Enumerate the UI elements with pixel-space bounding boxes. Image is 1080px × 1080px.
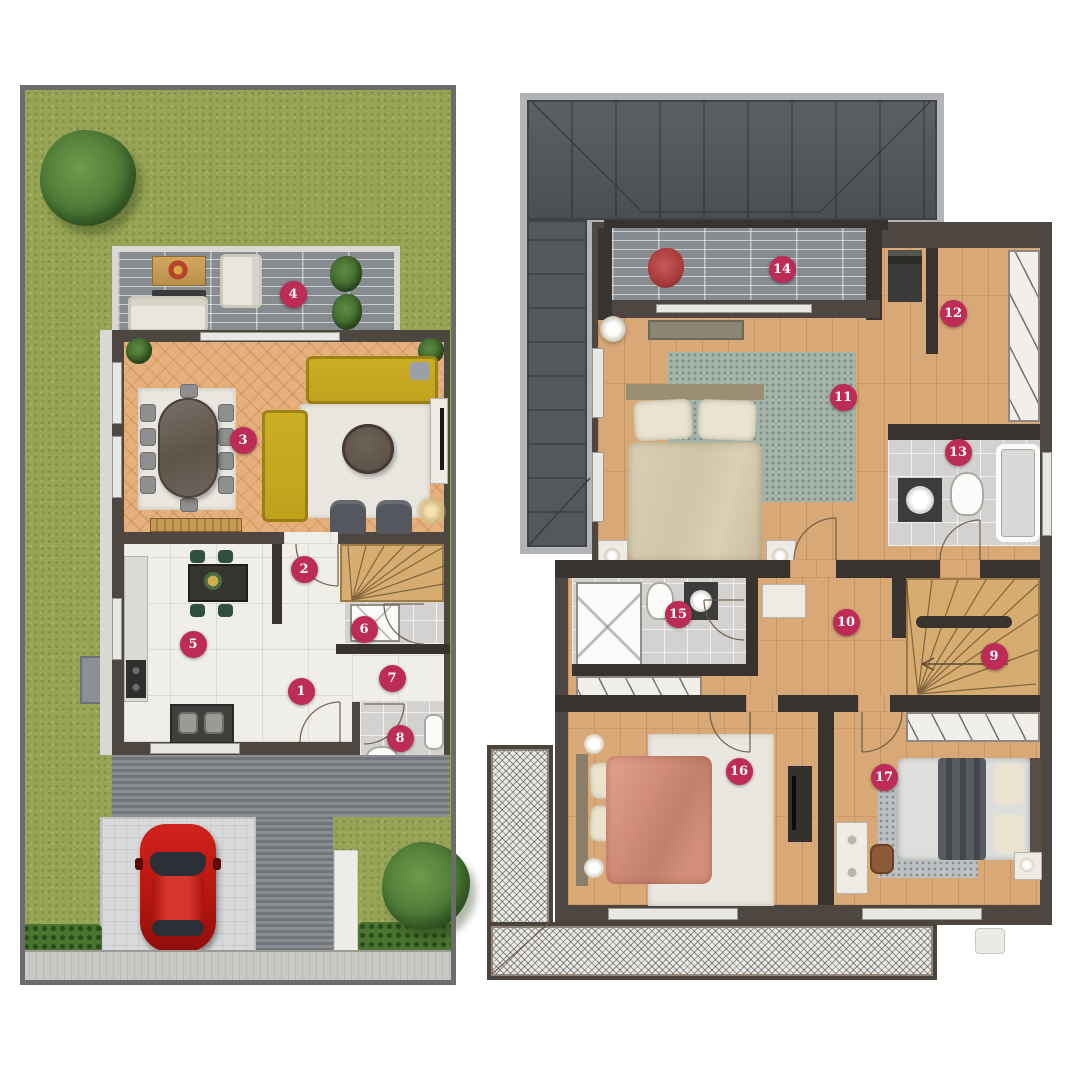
floor-plan-canvas: 1234567891011121314151617: [0, 0, 1080, 1080]
room-marker-14: 14: [769, 256, 796, 283]
room-marker-5: 5: [180, 631, 207, 658]
room-marker-1: 1: [288, 678, 315, 705]
room-marker-17: 17: [871, 764, 898, 791]
room-marker-9: 9: [981, 643, 1008, 670]
room-marker-10: 10: [833, 609, 860, 636]
room-marker-4: 4: [280, 281, 307, 308]
room-marker-15: 15: [665, 601, 692, 628]
room-marker-7: 7: [379, 665, 406, 692]
markers-layer: 1234567891011121314151617: [0, 0, 1080, 1080]
room-marker-8: 8: [387, 725, 414, 752]
room-marker-13: 13: [945, 439, 972, 466]
room-marker-6: 6: [351, 616, 378, 643]
room-marker-3: 3: [230, 427, 257, 454]
room-marker-12: 12: [940, 300, 967, 327]
room-marker-16: 16: [726, 758, 753, 785]
room-marker-11: 11: [830, 384, 857, 411]
room-marker-2: 2: [291, 556, 318, 583]
